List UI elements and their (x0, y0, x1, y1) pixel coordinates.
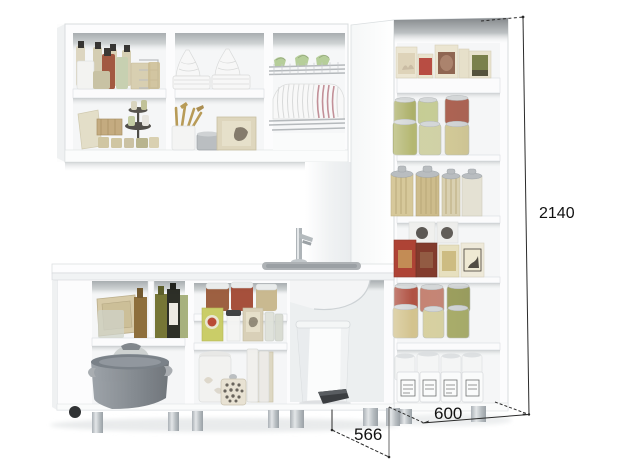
svg-text:566: 566 (354, 425, 382, 444)
svg-text:2140: 2140 (539, 205, 575, 222)
svg-text:600: 600 (434, 404, 462, 423)
